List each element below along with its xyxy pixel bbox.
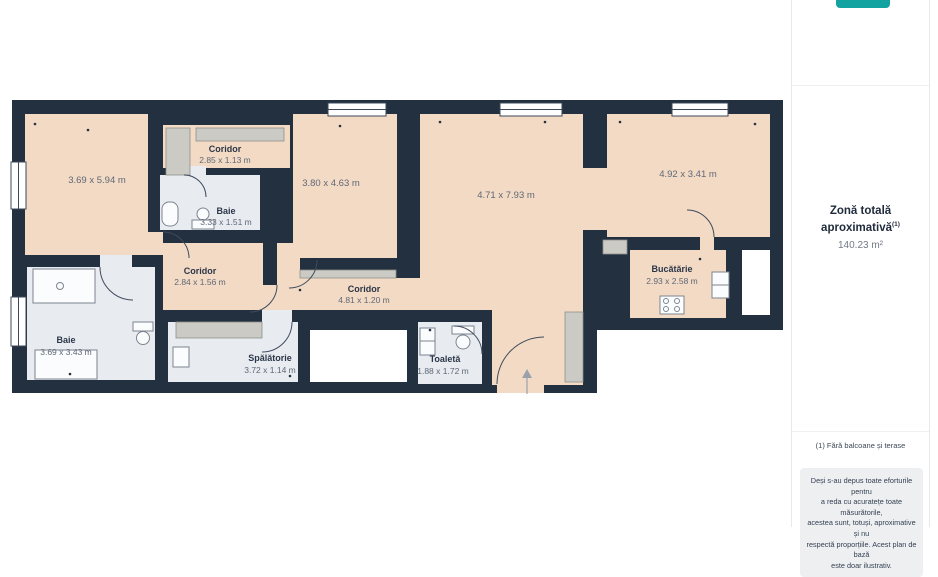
total-area-block: Zonă totală aproximativă(1) 140.23 m²: [792, 204, 929, 251]
closet-column: [166, 128, 190, 175]
stove: [660, 296, 684, 314]
room-living-center-floor: [420, 114, 583, 310]
shaft: [603, 240, 627, 254]
storage-void-room: [310, 330, 407, 382]
room-dims-living-center: 4.71 x 7.93 m: [477, 190, 535, 201]
door-gap: [700, 237, 714, 250]
room-dims-spalatorie: 3.72 x 1.14 m: [244, 365, 296, 375]
room-label-baie-bottom: Baie: [56, 335, 75, 345]
sink: [162, 202, 178, 226]
total-area-label: Zonă totală aproximativă: [821, 205, 892, 234]
closet-strip: [176, 322, 262, 338]
room-dims-toaleta: 1.88 x 1.72 m: [417, 366, 469, 376]
divider: [792, 431, 929, 432]
room-dims-coridor-top: 2.85 x 1.13 m: [199, 155, 251, 165]
laundry-sink: [173, 347, 189, 367]
room-label-toaleta: Toaletă: [430, 354, 462, 364]
disclaimer-line: respectă proporțiile. Acest plan de bază: [804, 540, 919, 561]
room-dims-right: 4.92 x 3.41 m: [659, 169, 717, 180]
shaft: [565, 312, 583, 382]
divider: [792, 85, 929, 86]
disclaimer-line: Deși s-au depus toate eforturile pentru: [804, 476, 919, 497]
room-label-coridor-top: Coridor: [209, 144, 242, 154]
disclaimer-box: Deși s-au depus toate eforturile pentru …: [800, 468, 923, 577]
entrance-door-gap: [497, 380, 544, 393]
room-dims-middle: 3.80 x 4.63 m: [302, 178, 360, 189]
room-label-coridor-main: Coridor: [348, 284, 381, 294]
toilet-tank: [133, 322, 153, 331]
door-gap: [148, 232, 163, 255]
room-dims-baie-top: 3.33 x 1.51 m: [200, 217, 252, 227]
room-label-spalatorie: Spălătorie: [248, 353, 292, 363]
disclaimer-line: a reda cu acuratețe toate măsurătorile,: [804, 497, 919, 518]
void-shaft: [742, 250, 770, 315]
room-label-coridor-left: Coridor: [184, 266, 217, 276]
room-dims-coridor-main: 4.81 x 1.20 m: [338, 295, 390, 305]
toilet-bowl: [137, 332, 150, 345]
room-dims-coridor-left: 2.84 x 1.56 m: [174, 277, 226, 287]
room-label-baie-top: Baie: [216, 206, 235, 216]
total-area-title: Zonă totală aproximativă(1): [792, 204, 929, 235]
total-area-value: 140.23 m²: [792, 240, 929, 251]
room-dims-baie-bottom: 3.69 x 3.43 m: [40, 347, 92, 357]
disclaimer-line: acestea sunt, totuși, aproximative și nu: [804, 518, 919, 539]
door-gap: [262, 310, 292, 322]
room-dims-bucatarie: 2.93 x 2.58 m: [646, 276, 698, 286]
floor-plan: 3.69 x 5.94 m Coridor 2.85 x 1.13 m Baie…: [0, 0, 790, 527]
opening: [583, 168, 607, 230]
total-area-superscript: (1): [892, 221, 900, 228]
room-label-bucatarie: Bucătărie: [651, 264, 692, 274]
action-button[interactable]: [836, 0, 890, 8]
disclaimer-line: este doar ilustrativ.: [804, 561, 919, 572]
wall-stub: [263, 243, 277, 285]
tub-drain: [57, 283, 64, 290]
room-dims-living-left: 3.69 x 5.94 m: [68, 175, 126, 186]
toilet-bowl: [456, 335, 470, 349]
info-panel: Zonă totală aproximativă(1) 140.23 m² (1…: [791, 0, 930, 527]
door-gap: [100, 255, 132, 267]
closet-strip: [196, 128, 284, 141]
footnote: (1) Fără balcoane și terase: [792, 441, 929, 450]
